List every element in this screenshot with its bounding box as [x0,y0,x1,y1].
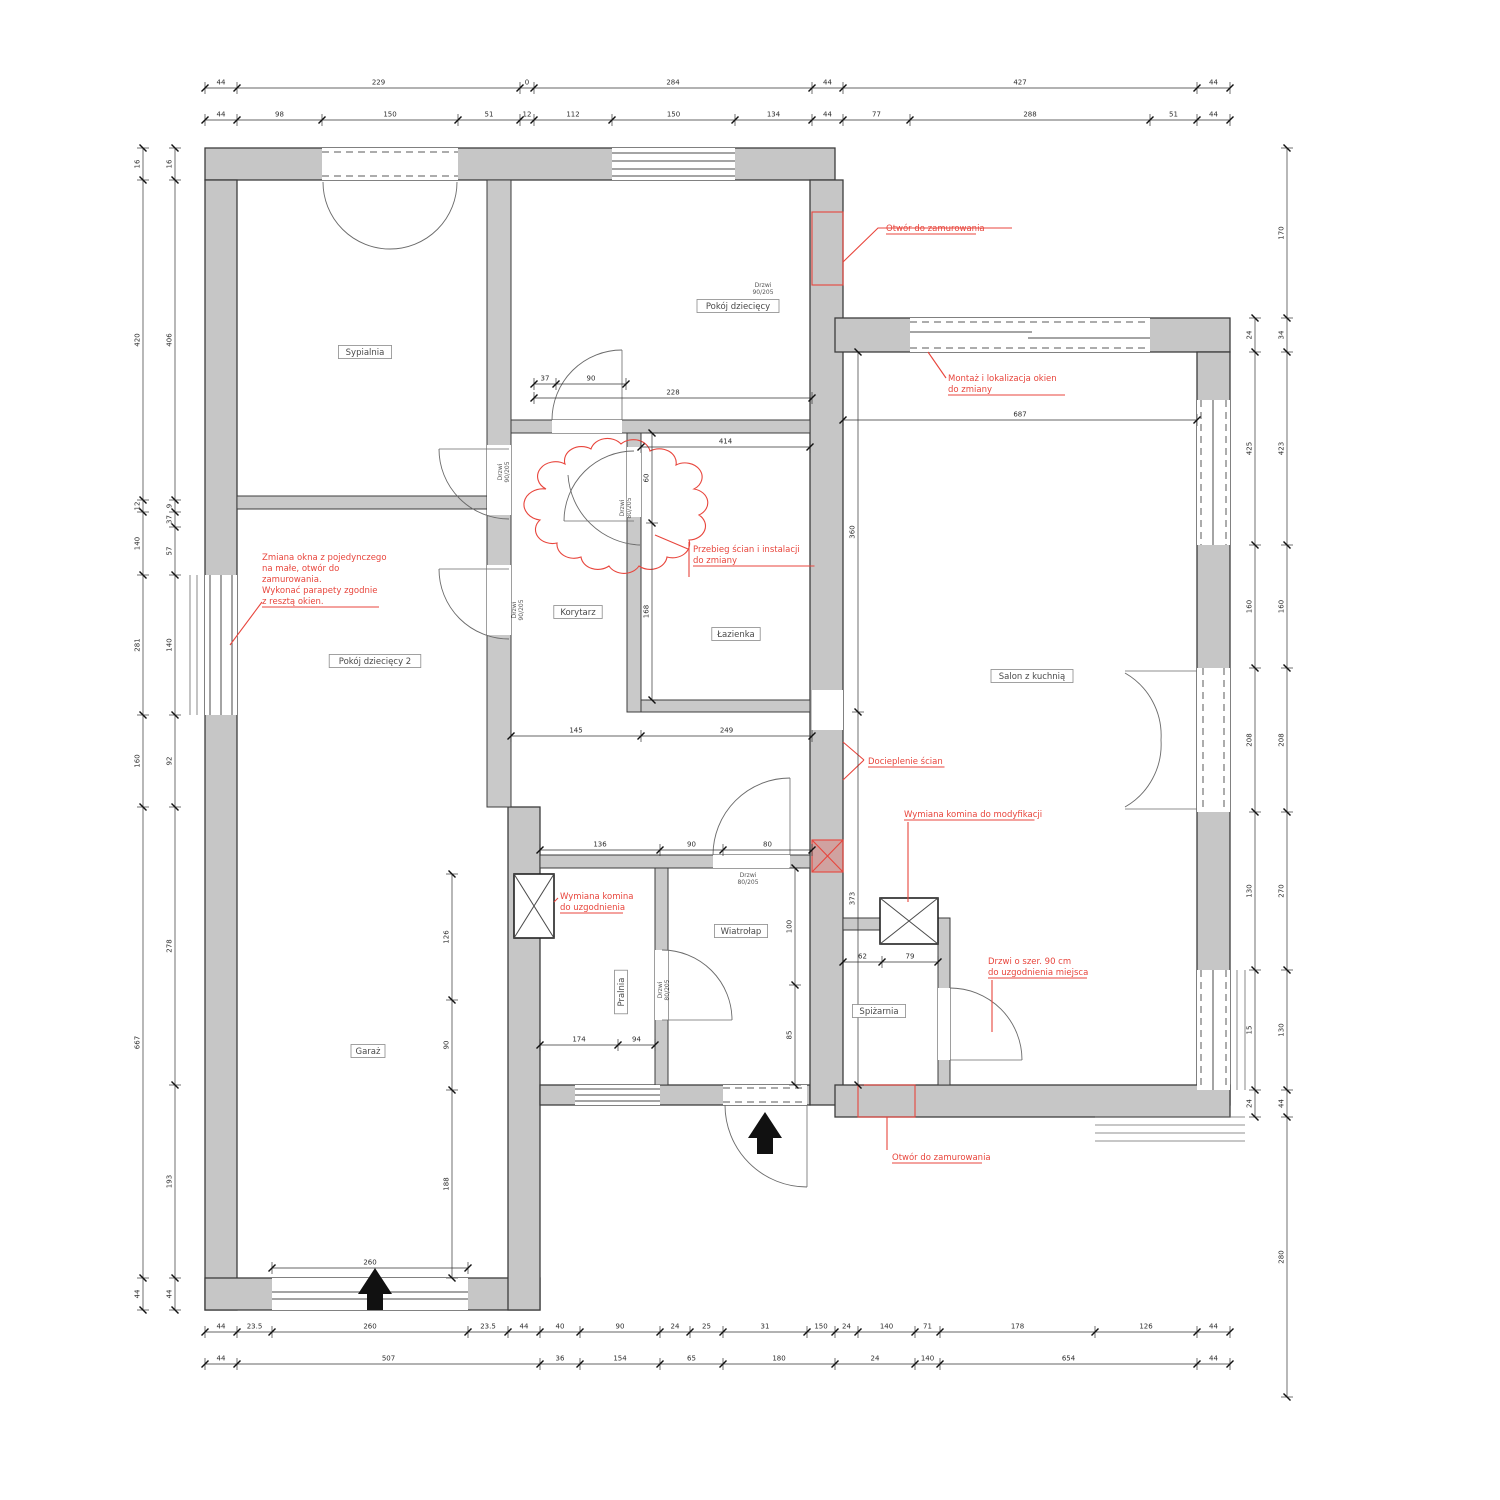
dim-label: 188 [443,1177,451,1190]
dim-label: 62 [858,953,867,961]
revision-note-text: do uzgodnienia [560,903,625,913]
dim-label: 44 [1209,79,1218,87]
dim-label: 687 [1013,411,1026,419]
dim-label: 51 [485,111,494,119]
entrance-arrow-icon [748,1112,782,1154]
revision-note: Wymiana kominado uzgodnienia [560,892,634,913]
dim-label: 9 [166,504,174,508]
dim-strip: 260 [269,1259,472,1275]
dim-label: 278 [166,939,174,952]
chimney [880,898,938,944]
dim-label: 134 [767,111,781,119]
dim-label: 425 [1246,442,1254,455]
dim-label: 180 [772,1355,785,1363]
room-label-text: Garaż [356,1047,381,1057]
dim-label: 36 [556,1355,565,1363]
dim-label: 270 [1278,884,1286,897]
room-label: Spiżarnia [852,1005,905,1018]
revision-note-text: Przebieg ścian i instalacji [693,544,800,555]
dim-label: 140 [921,1355,934,1363]
dim-label: 90 [687,841,696,849]
revision-note-text: zamurowania. [262,575,322,585]
dim-label: 24 [1246,330,1254,339]
dim-strip: 414 [638,438,814,454]
revision-note-text: na małe, otwór do [262,563,339,574]
dim-strip: 164201214028116066744 [134,145,150,1314]
dim-label: 150 [667,111,680,119]
revision-note-text: z resztą okien. [262,597,324,607]
dim-label: 174 [572,1036,586,1044]
dim-strip: 6279 [840,953,942,969]
dim-strip: 3790 [531,375,630,391]
revision-note: Otwór do zamurowania [886,223,985,234]
room-label-text: Sypialnia [346,348,385,358]
room-label: Wiatrołap [714,925,767,938]
dim-label: 44 [134,1289,142,1298]
revision-note-text: Montaż i lokalizacja okien [948,374,1057,384]
dim-label: 94 [632,1036,641,1044]
revision-cloud [524,438,708,573]
dim-label: 44 [1209,111,1218,119]
dim-label: 145 [569,727,582,735]
door-tag-text: 90/205 [752,289,773,296]
door-tag-text: 90/205 [518,599,525,620]
room-label-text: Korytarz [560,608,596,618]
revision-note-text: do uzgodnienia miejsca [988,968,1088,978]
revision-note: Zmiana okna z pojedynczegona małe, otwór… [262,553,387,607]
door-tag-text: Drzwi [740,872,757,879]
dim-label: 112 [566,111,579,119]
dim-label: 90 [443,1041,451,1050]
door-tag-text: 80/205 [737,879,758,886]
dim-label: 280 [1278,1250,1286,1263]
dim-label: 154 [613,1355,627,1363]
revision-note-text: Wymiana komina do modyfikacji [904,810,1042,820]
dim-label: 140 [166,638,174,651]
revision-note-text: Zmiana okna z pojedynczego [262,553,387,563]
dim-strip: 10085 [786,865,802,1089]
door-tag: Drzwi80/205 [657,979,671,1000]
dim-label: 160 [1246,600,1254,613]
door-tag-text: Drzwi [755,282,772,289]
revision-note-text: Drzwi o szer. 90 cm [988,957,1071,967]
room-label: Korytarz [554,606,602,619]
dim-label: 160 [1278,600,1286,613]
dim-label: 44 [217,1323,226,1331]
door-tag-text: Drzwi [497,463,504,480]
door-tag: Drzwi90/205 [752,282,773,296]
dim-label: 12 [134,502,142,511]
dim-label: 170 [1278,226,1286,239]
dim-label: 44 [1209,1323,1218,1331]
dim-label: 140 [134,537,142,550]
dim-strip: 228 [531,389,816,405]
dim-label: 44 [217,1355,226,1363]
dim-label: 249 [720,727,733,735]
dim-strip: 244251602081301524 [1246,315,1262,1121]
dim-label: 24 [671,1323,680,1331]
dim-label: 229 [372,79,385,87]
dim-strip: 1369080 [537,841,816,857]
dim-label: 414 [719,438,733,446]
room-label: Sypialnia [338,346,391,359]
dim-label: 25 [702,1323,711,1331]
room-label-text: Spiżarnia [859,1007,898,1017]
dim-label: 57 [166,547,174,556]
door-tag: Drzwi90/205 [511,599,525,620]
dim-label: 260 [363,1259,376,1267]
dim-label: 44 [1278,1099,1286,1108]
door-tag-text: 80/205 [664,979,671,1000]
revision-note: Wymiana komina do modyfikacji [904,810,1042,820]
dim-label: 51 [1169,111,1178,119]
dim-label: 92 [166,757,174,766]
revision-note: Przebieg ścian i instalacjido zmiany [693,544,815,566]
dim-strip: 60168 [643,430,659,704]
dim-label: 23.5 [480,1323,496,1331]
floor-plan-page: 4422902844442744449815051121121501344477… [0,0,1500,1500]
dim-label: 193 [166,1175,174,1188]
dim-label: 126 [443,930,451,944]
room-label: Garaż [351,1045,385,1058]
dim-strip: 17494 [537,1036,659,1052]
dim-label: 90 [616,1323,625,1331]
dim-strip: 4450736154651802414065444 [202,1355,1234,1371]
revision-note-text: Otwór do zamurowania [892,1152,991,1163]
dim-label: 65 [687,1355,696,1363]
room-label-text: Pokój dziecięcy [706,301,770,312]
revision-note-text: Otwór do zamurowania [886,223,985,234]
dim-strip: 12690188 [443,871,459,1282]
revision-note: Docieplenie ścian [868,756,945,767]
revision-note: Montaż i lokalizacja okiendo zmiany [948,374,1065,395]
dim-label: 34 [1278,330,1286,339]
dim-label: 77 [872,111,881,119]
dim-strip: 4422902844442744 [202,79,1234,95]
dim-label: 44 [166,1289,174,1298]
dim-label: 373 [849,892,857,905]
dim-label: 667 [134,1036,142,1049]
dim-strip: 1703442316020827013044280 [1278,145,1294,1401]
dim-label: 44 [1209,1355,1218,1363]
dim-label: 136 [593,841,607,849]
dim-label: 140 [880,1323,893,1331]
dim-label: 150 [383,111,396,119]
dim-label: 12 [523,111,532,119]
door-tag: Drzwi80/205 [737,872,758,886]
dim-strip: 16406937571409227819344 [166,145,182,1314]
dim-label: 130 [1246,884,1254,897]
dim-label: 44 [217,111,226,119]
dim-label: 44 [823,111,832,119]
revision-note-text: Docieplenie ścian [868,756,943,767]
dim-label: 228 [666,389,679,397]
door-tag-text: 80/205 [626,497,633,518]
dim-label: 98 [275,111,284,119]
dim-label: 37 [541,375,550,383]
room-label: Pokój dziecięcy [697,300,779,313]
dim-label: 79 [906,953,915,961]
dim-label: 208 [1278,733,1286,746]
dim-label: 288 [1023,111,1036,119]
dim-label: 24 [1246,1099,1254,1108]
dim-label: 15 [1246,1026,1254,1035]
dim-label: 126 [1139,1323,1153,1331]
room-label-text: Pralnia [617,978,627,1007]
dim-strip: 4423.526023.5444090242531150241407117812… [202,1323,1234,1339]
revision-annotations: Otwór do zamurowaniaMontaż i lokalizacja… [262,223,1088,1163]
dim-label: 360 [849,525,857,538]
dim-label: 85 [786,1031,794,1040]
revision-note-text: Wymiana komina [560,892,634,902]
room-label: Pokój dziecięcy 2 [329,655,421,668]
dim-label: 40 [556,1323,565,1331]
floor-plan-drawing: 4422902844442744449815051121121501344477… [0,0,1500,1500]
dim-label: 37 [166,515,174,524]
dim-label: 60 [643,474,651,483]
dim-label: 31 [761,1323,770,1331]
dim-label: 71 [923,1323,932,1331]
dim-label: 284 [666,79,680,87]
dim-strip: 4498150511211215013444772885144 [202,111,1234,127]
door-tag-text: 90/205 [504,461,511,482]
dim-label: 208 [1246,733,1254,746]
dim-label: 80 [763,841,772,849]
dim-strip: 687 [840,411,1201,427]
dim-label: 44 [823,79,832,87]
room-label-text: Łazienka [716,630,754,640]
room-label: Pralnia [615,970,628,1014]
terrace-steps [1095,1117,1245,1141]
dim-label: 90 [587,375,596,383]
dim-label: 44 [217,79,226,87]
door-tag: Drzwi90/205 [497,461,511,482]
dim-label: 168 [643,605,651,618]
dimension-lines: 4422902844442744449815051121121501344477… [134,79,1294,1401]
revision-note: Drzwi o szer. 90 cmdo uzgodnienia miejsc… [988,957,1088,978]
dim-label: 420 [134,333,142,346]
fireplace [514,874,554,938]
dim-label: 16 [134,159,142,168]
dim-strip: 360373 [849,349,865,1089]
room-label: Salon z kuchnią [991,670,1073,683]
dim-label: 100 [786,920,794,933]
dim-label: 24 [871,1355,880,1363]
dim-label: 44 [520,1323,529,1331]
dim-label: 23.5 [247,1323,263,1331]
dim-label: 654 [1062,1355,1076,1363]
room-labels: SypialniaPokój dziecięcyPokój dziecięcy … [329,300,1073,1058]
dim-label: 423 [1278,442,1286,455]
dim-label: 427 [1013,79,1026,87]
dim-label: 281 [134,638,142,651]
door-tag-text: Drzwi [657,981,664,998]
windows [190,148,1245,1310]
dim-strip: 145249 [508,727,816,743]
room-label-text: Pokój dziecięcy 2 [339,656,411,667]
revision-note: Otwór do zamurowania [892,1152,991,1163]
door-tag-text: Drzwi [511,601,518,618]
dim-label: 150 [814,1323,827,1331]
dim-label: 406 [166,333,174,347]
door-tag-text: Drzwi [619,499,626,516]
dim-label: 0 [525,79,529,87]
dim-label: 130 [1278,1023,1286,1036]
dim-label: 507 [382,1355,395,1363]
dim-label: 160 [134,754,142,767]
dim-label: 16 [166,159,174,168]
room-label-text: Salon z kuchnią [999,672,1066,682]
revision-note-text: do zmiany [948,385,992,395]
revision-note-text: do zmiany [693,556,737,566]
revision-note-text: Wykonać parapety zgodnie [262,585,378,596]
dim-label: 178 [1011,1323,1024,1331]
dim-label: 260 [363,1323,376,1331]
room-label: Łazienka [712,628,760,641]
room-label-text: Wiatrołap [721,927,762,937]
door-tag: Drzwi80/205 [619,497,633,518]
dim-label: 24 [842,1323,851,1331]
